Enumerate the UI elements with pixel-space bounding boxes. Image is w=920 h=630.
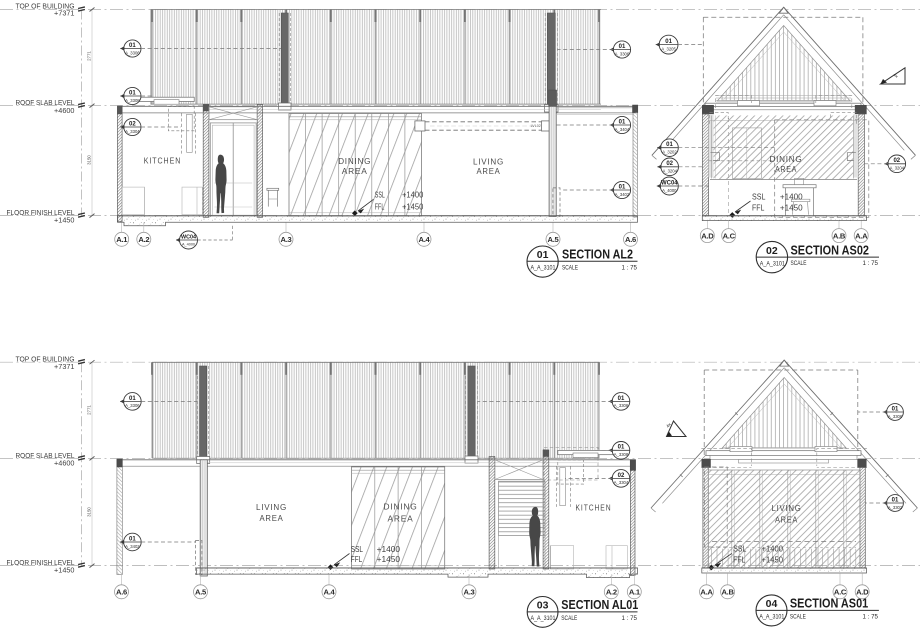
svg-text:SSL: SSL	[733, 545, 746, 554]
svg-text:02: 02	[766, 245, 778, 257]
svg-text:01: 01	[618, 445, 625, 451]
svg-text:LIVING: LIVING	[772, 503, 802, 513]
svg-text:01: 01	[665, 39, 672, 45]
svg-text:+1400: +1400	[402, 191, 424, 200]
svg-text:A.C: A.C	[723, 231, 736, 240]
svg-text:FFL: FFL	[375, 203, 385, 212]
svg-text:A.D: A.D	[701, 231, 714, 240]
svg-text:01: 01	[129, 536, 136, 542]
svg-text:1 : 75: 1 : 75	[622, 264, 638, 271]
svg-text:A_3302: A_3302	[888, 505, 903, 510]
svg-text:+1450: +1450	[762, 556, 784, 565]
svg-text:1 : 75: 1 : 75	[863, 613, 879, 620]
svg-text:A_3202: A_3202	[662, 150, 677, 155]
svg-text:A.1: A.1	[629, 588, 641, 597]
svg-text:2771: 2771	[87, 51, 92, 61]
svg-text:SSL: SSL	[752, 192, 766, 201]
svg-text:01: 01	[619, 184, 626, 190]
svg-text:A_3306: A_3306	[125, 50, 140, 55]
svg-text:A_3304: A_3304	[614, 480, 629, 485]
svg-text:01: 01	[619, 44, 626, 50]
svg-text:FFL: FFL	[733, 556, 745, 565]
svg-text:SSL: SSL	[351, 545, 364, 554]
svg-text:+1400: +1400	[762, 545, 784, 554]
svg-text:A_A_3101: A_A_3101	[531, 615, 556, 622]
svg-text:SSL: SSL	[375, 191, 385, 200]
svg-text:SCALE: SCALE	[562, 264, 578, 271]
svg-text:+1450: +1450	[54, 566, 75, 575]
svg-text:01: 01	[892, 497, 899, 503]
svg-text:A_3306: A_3306	[614, 403, 629, 408]
svg-text:+1450: +1450	[780, 203, 803, 212]
svg-text:DINING: DINING	[384, 501, 418, 511]
svg-text:A.6: A.6	[625, 235, 636, 244]
svg-text:A_3205: A_3205	[661, 46, 676, 51]
svg-text:A_3306: A_3306	[888, 414, 903, 419]
svg-text:SECTION AS02: SECTION AS02	[791, 242, 870, 257]
svg-text:3150: 3150	[87, 155, 92, 165]
svg-text:SCALE: SCALE	[561, 615, 577, 622]
svg-text:A.5: A.5	[548, 235, 560, 244]
svg-text:SECTION AS01: SECTION AS01	[790, 596, 868, 611]
svg-text:FFL: FFL	[351, 555, 363, 564]
svg-text:03: 03	[537, 600, 549, 612]
svg-text:01: 01	[892, 406, 899, 412]
svg-text:3150: 3150	[87, 507, 92, 517]
svg-text:02: 02	[129, 121, 136, 127]
svg-text:SCALE: SCALE	[791, 260, 807, 267]
svg-text:+1400: +1400	[377, 545, 401, 554]
svg-text:A.4: A.4	[324, 588, 336, 597]
svg-text:FFL: FFL	[752, 203, 765, 212]
svg-text:A.2: A.2	[606, 588, 617, 597]
svg-text:A.B: A.B	[833, 231, 846, 240]
svg-text:A_A_3101: A_A_3101	[531, 265, 556, 272]
svg-text:A_3306: A_3306	[125, 403, 140, 408]
svg-text:+1450: +1450	[402, 203, 424, 212]
svg-text:AREA: AREA	[260, 513, 284, 523]
svg-text:AREA: AREA	[342, 166, 368, 176]
svg-text:A.A: A.A	[855, 231, 868, 240]
svg-text:AREA: AREA	[775, 514, 798, 524]
svg-text:A_3204: A_3204	[662, 169, 677, 174]
svg-text:A_3306: A_3306	[615, 51, 630, 56]
svg-text:A_A_3101: A_A_3101	[759, 614, 784, 621]
svg-text:01: 01	[666, 142, 673, 148]
svg-text:WC04: WC04	[661, 180, 678, 186]
svg-text:A_4000: A_4000	[182, 243, 195, 247]
svg-text:01: 01	[129, 396, 136, 402]
svg-text:+7371: +7371	[54, 9, 75, 18]
svg-text:01: 01	[618, 396, 625, 402]
svg-text:+1450: +1450	[377, 555, 401, 564]
svg-text:LIVING: LIVING	[473, 156, 504, 166]
svg-text:A_3404: A_3404	[615, 127, 630, 132]
svg-text:02: 02	[666, 161, 673, 167]
svg-text:02: 02	[618, 473, 625, 479]
svg-text:A.3: A.3	[464, 588, 475, 597]
svg-text:LIVING: LIVING	[256, 502, 287, 512]
svg-text:A_3308: A_3308	[125, 98, 140, 103]
svg-text:A.6: A.6	[116, 588, 127, 597]
svg-text:01: 01	[129, 43, 136, 49]
svg-text:A.A: A.A	[700, 588, 713, 597]
svg-text:KITCHEN: KITCHEN	[144, 156, 182, 165]
svg-text:LVL02: LVL02	[531, 124, 541, 128]
svg-text:SECTION AL01: SECTION AL01	[561, 597, 638, 612]
svg-text:+1450: +1450	[54, 216, 75, 225]
svg-text:A.2: A.2	[138, 235, 149, 244]
svg-text:AREA: AREA	[388, 514, 414, 524]
svg-text:A.1: A.1	[116, 235, 128, 244]
svg-text:01: 01	[619, 119, 626, 125]
svg-text:A.5: A.5	[195, 588, 207, 597]
svg-text:+4600: +4600	[54, 458, 75, 467]
svg-text:A.3: A.3	[281, 235, 292, 244]
svg-text:1 : 75: 1 : 75	[863, 260, 879, 267]
svg-text:02: 02	[893, 158, 900, 164]
svg-text:SECTION AL2: SECTION AL2	[562, 246, 633, 261]
svg-text:01: 01	[537, 249, 549, 261]
svg-text:A.B: A.B	[722, 588, 735, 597]
svg-text:A_4000: A_4000	[662, 188, 677, 193]
svg-text:+7371: +7371	[54, 362, 75, 371]
svg-text:01: 01	[129, 90, 136, 96]
svg-text:DINING: DINING	[338, 156, 371, 166]
svg-text:A_3308: A_3308	[614, 452, 629, 457]
svg-text:1 : 75: 1 : 75	[622, 615, 638, 622]
svg-text:A_3402: A_3402	[615, 192, 630, 197]
svg-text:2771: 2771	[87, 405, 92, 415]
svg-text:A_3402: A_3402	[125, 544, 140, 549]
svg-text:KITCHEN: KITCHEN	[576, 504, 612, 513]
svg-text:A.4: A.4	[419, 235, 431, 244]
svg-text:A_A_3101: A_A_3101	[760, 260, 785, 267]
svg-text:AREA: AREA	[775, 164, 797, 174]
svg-text:+4600: +4600	[54, 106, 75, 115]
svg-text:A_3204: A_3204	[890, 166, 905, 171]
svg-text:A_3304: A_3304	[125, 129, 140, 134]
svg-text:AREA: AREA	[477, 166, 501, 176]
svg-text:WC04: WC04	[181, 234, 196, 240]
svg-text:+1400: +1400	[780, 192, 803, 201]
svg-text:SCALE: SCALE	[790, 613, 806, 620]
svg-text:04: 04	[766, 598, 778, 610]
svg-text:DINING: DINING	[770, 154, 803, 164]
